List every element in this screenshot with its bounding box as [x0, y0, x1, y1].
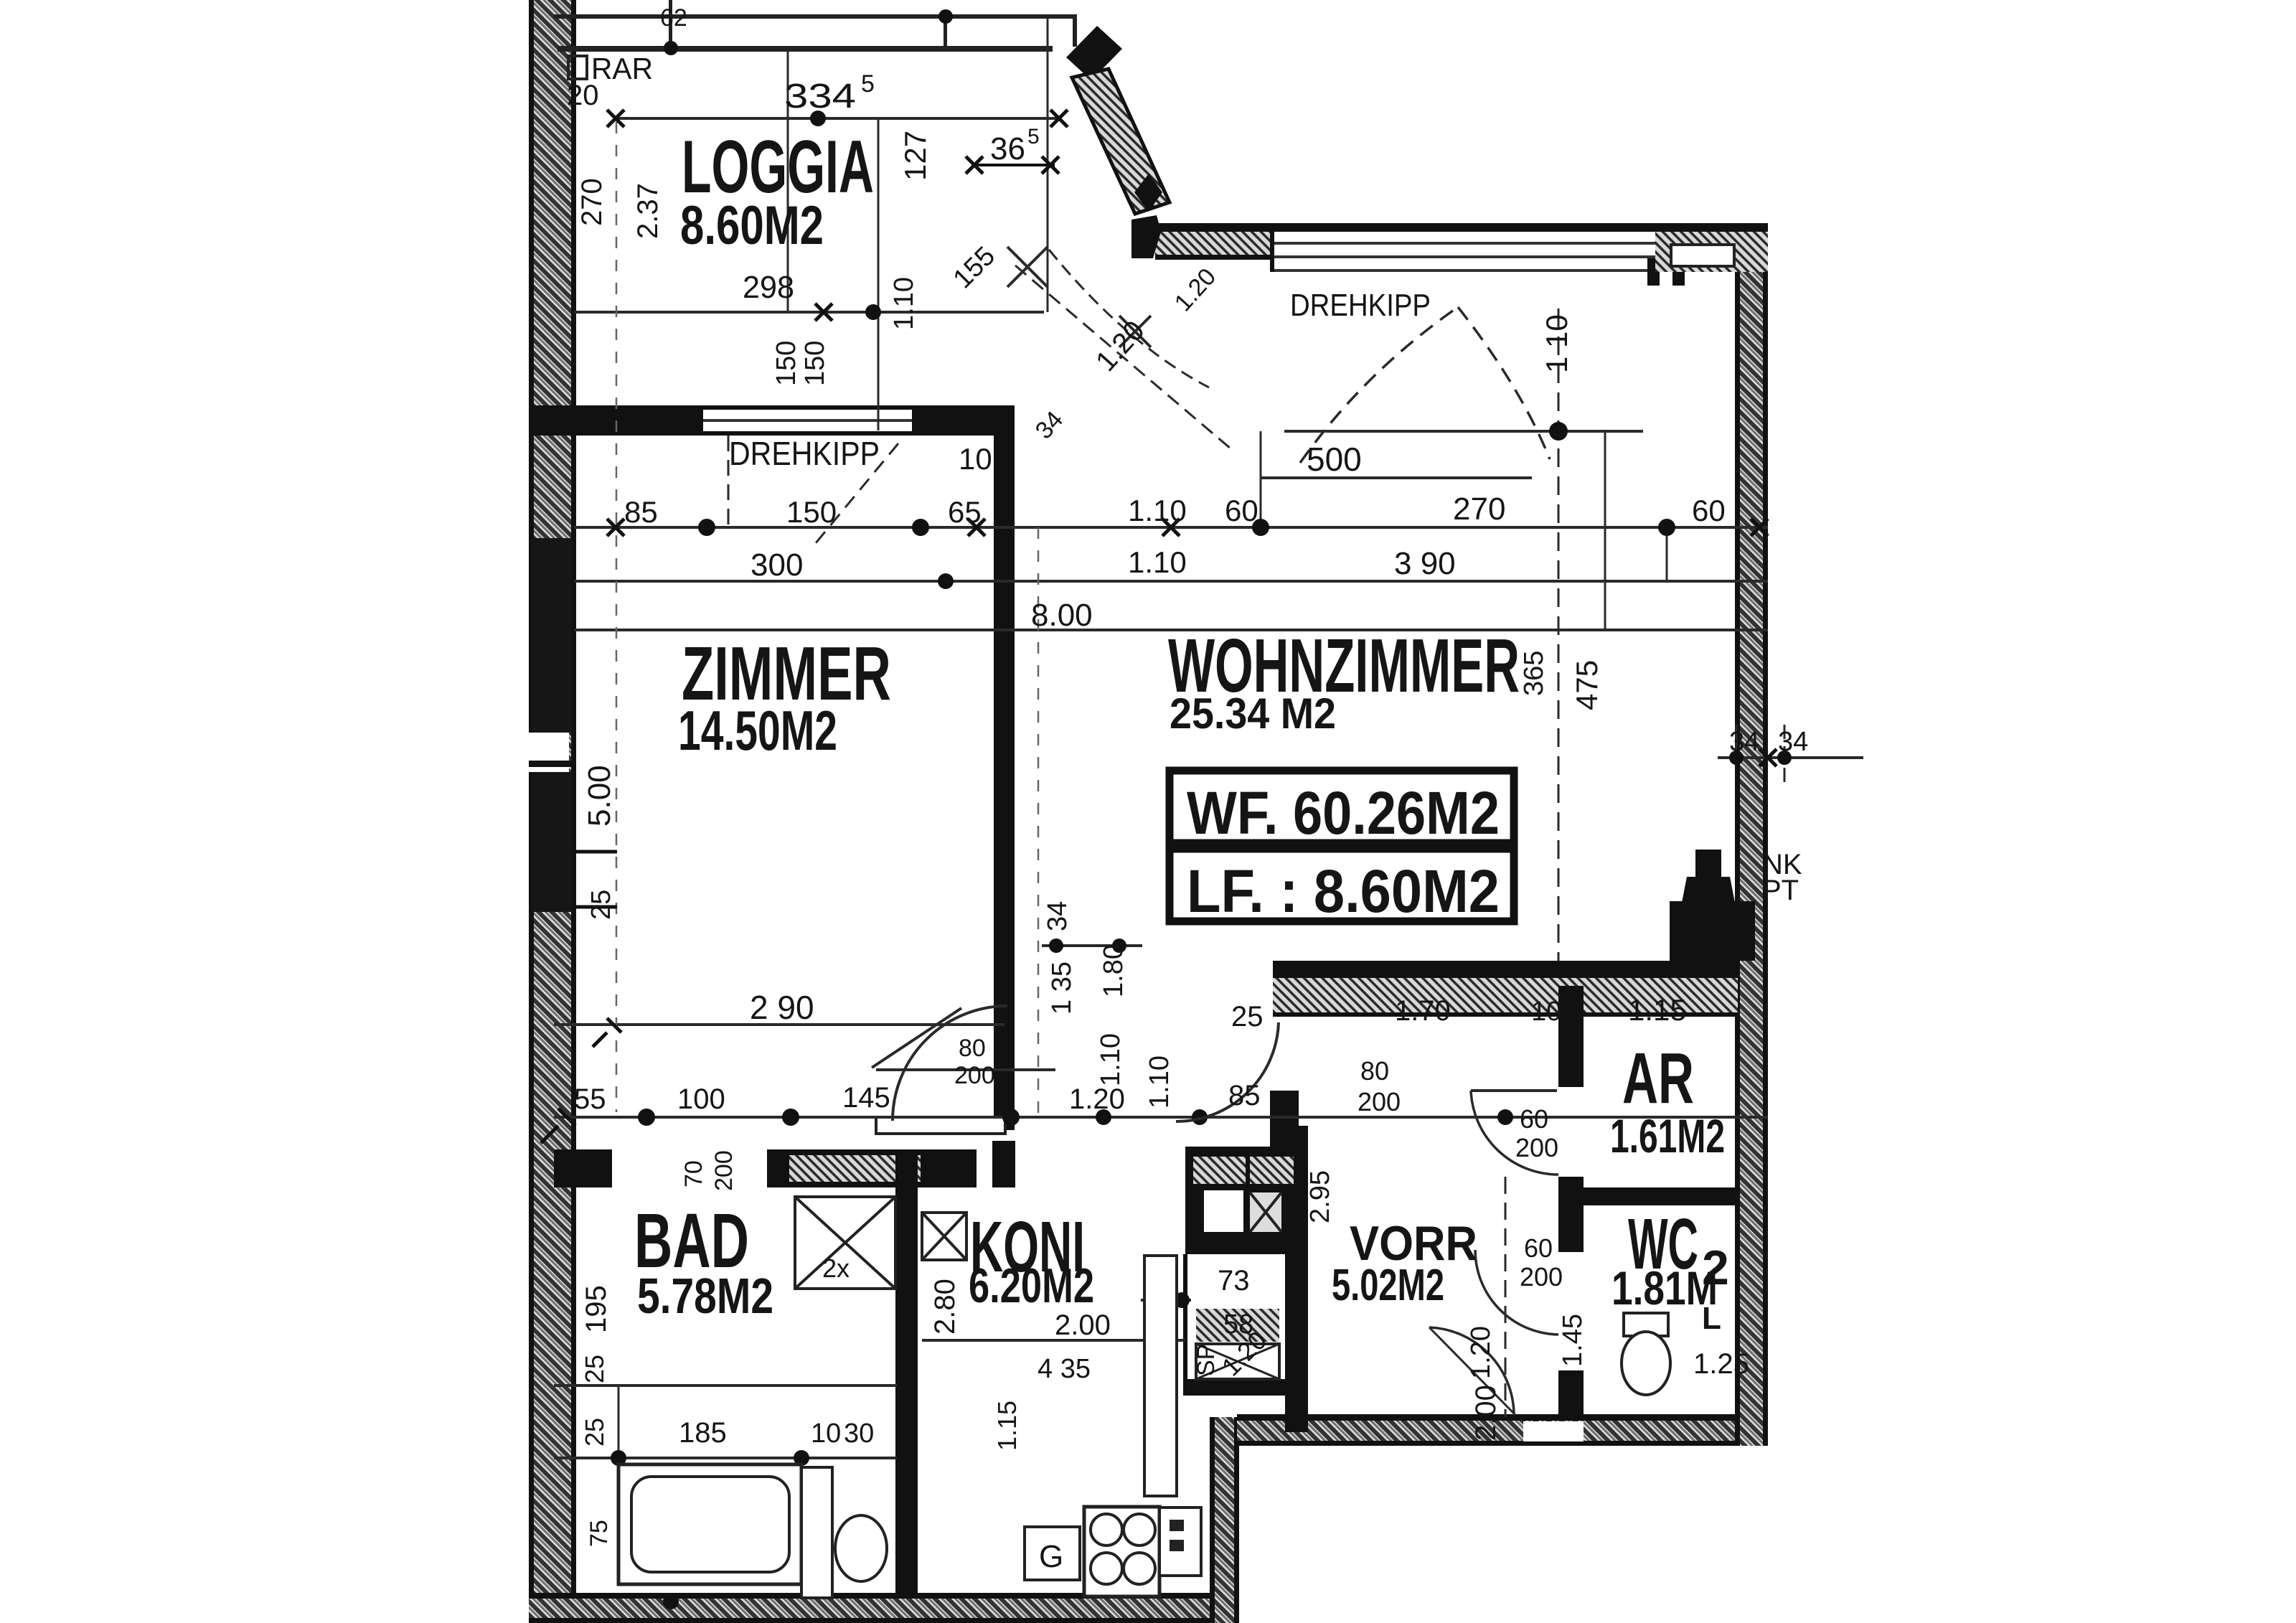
svg-text:1.61M2: 1.61M2 [1610, 1109, 1725, 1162]
svg-text:300: 300 [751, 547, 803, 583]
svg-text:DREHKIPP: DREHKIPP [1290, 288, 1431, 323]
svg-text:25: 25 [580, 1355, 609, 1383]
svg-text:4 35: 4 35 [1038, 1354, 1091, 1384]
svg-text:AR: AR [1622, 1038, 1694, 1119]
svg-text:2.00: 2.00 [1470, 1385, 1502, 1441]
svg-text:1.15: 1.15 [1628, 993, 1687, 1027]
svg-text:1.10: 1.10 [1144, 1055, 1175, 1109]
svg-text:10: 10 [811, 1419, 841, 1449]
svg-text:PT: PT [1762, 875, 1799, 906]
svg-text:2 90: 2 90 [750, 989, 814, 1026]
svg-text:1.20: 1.20 [1069, 1083, 1125, 1115]
svg-text:L: L [1702, 1301, 1721, 1336]
svg-text:3 90: 3 90 [1394, 546, 1456, 581]
svg-text:85: 85 [624, 495, 658, 529]
svg-text:G: G [1039, 1539, 1063, 1574]
svg-text:200: 200 [954, 1062, 995, 1089]
svg-text:1.45: 1.45 [1558, 1314, 1588, 1367]
svg-text:5.00: 5.00 [582, 765, 617, 827]
svg-text:DREHKIPP: DREHKIPP [729, 435, 880, 472]
svg-text:73: 73 [1218, 1265, 1250, 1297]
svg-text:36: 36 [990, 131, 1025, 166]
svg-text:1.70: 1.70 [1395, 995, 1451, 1027]
svg-text:80: 80 [1360, 1056, 1389, 1086]
svg-text:65: 65 [948, 495, 982, 529]
svg-text:8.60M2: 8.60M2 [680, 195, 824, 256]
svg-text:1.15: 1.15 [992, 1401, 1022, 1451]
svg-text:200: 200 [710, 1150, 738, 1191]
svg-text:60: 60 [1692, 494, 1726, 527]
svg-text:1.10: 1.10 [1128, 494, 1187, 527]
svg-text:5.78M2: 5.78M2 [637, 1268, 773, 1324]
svg-text:WF. 60.26M2: WF. 60.26M2 [1187, 779, 1500, 847]
svg-text:14.50M2: 14.50M2 [678, 699, 837, 762]
svg-text:10: 10 [959, 442, 992, 476]
svg-text:1 35: 1 35 [1047, 961, 1077, 1015]
svg-text:127: 127 [898, 131, 932, 181]
svg-text:185: 185 [679, 1417, 727, 1449]
svg-text:34: 34 [1043, 901, 1073, 931]
svg-text:85: 85 [1228, 1080, 1261, 1111]
svg-text:30: 30 [844, 1419, 874, 1449]
svg-text:55: 55 [574, 1083, 606, 1115]
svg-text:25: 25 [580, 1418, 609, 1446]
svg-text:25.34 M2: 25.34 M2 [1170, 690, 1336, 738]
svg-text:150: 150 [786, 495, 837, 529]
svg-text:1 10: 1 10 [1540, 314, 1573, 373]
svg-text:20: 20 [567, 80, 599, 111]
svg-text:RAR: RAR [591, 52, 653, 85]
svg-text:150: 150 [771, 341, 801, 386]
svg-text:200: 200 [1520, 1262, 1563, 1292]
svg-text:2.37: 2.37 [632, 183, 664, 239]
svg-text:2.00: 2.00 [1055, 1309, 1111, 1341]
svg-text:1.10: 1.10 [889, 277, 919, 330]
svg-text:1.20: 1.20 [1466, 1326, 1496, 1379]
svg-text:80: 80 [959, 1035, 986, 1062]
svg-text:298: 298 [743, 270, 794, 305]
svg-text:334: 334 [784, 77, 856, 116]
svg-text:LF. : 8.60M2: LF. : 8.60M2 [1187, 857, 1500, 925]
svg-text:2.95: 2.95 [1305, 1170, 1335, 1223]
svg-text:62: 62 [660, 4, 687, 32]
svg-text:150: 150 [800, 341, 830, 386]
svg-text:200: 200 [1515, 1133, 1558, 1162]
svg-text:75: 75 [585, 1520, 613, 1547]
svg-text:200: 200 [1358, 1087, 1401, 1116]
svg-text:70: 70 [680, 1160, 707, 1187]
svg-text:34: 34 [1729, 727, 1759, 757]
svg-text:25: 25 [586, 890, 616, 920]
svg-text:475: 475 [1570, 660, 1604, 710]
svg-text:6.20M2: 6.20M2 [969, 1259, 1094, 1313]
svg-text:10: 10 [1531, 997, 1561, 1027]
svg-text:270: 270 [576, 178, 608, 226]
svg-text:500: 500 [1307, 441, 1362, 478]
svg-text:2.80: 2.80 [929, 1279, 961, 1335]
svg-text:2x: 2x [822, 1253, 850, 1283]
svg-text:195: 195 [580, 1285, 612, 1333]
svg-text:5.02M2: 5.02M2 [1332, 1261, 1444, 1310]
svg-text:8.00: 8.00 [1031, 598, 1093, 633]
svg-text:365: 365 [1519, 651, 1549, 696]
svg-text:SP: SP [1192, 1344, 1220, 1376]
svg-text:60: 60 [1225, 494, 1258, 527]
svg-text:5: 5 [861, 70, 875, 98]
svg-text:1.25: 1.25 [1693, 1348, 1749, 1380]
svg-text:60: 60 [1520, 1104, 1548, 1134]
svg-text:145: 145 [842, 1082, 890, 1114]
svg-text:60: 60 [1524, 1233, 1553, 1263]
svg-text:270: 270 [1453, 491, 1505, 527]
svg-text:100: 100 [677, 1083, 725, 1115]
svg-text:34: 34 [1778, 727, 1808, 757]
svg-text:25: 25 [1231, 1001, 1264, 1032]
svg-text:1.80: 1.80 [1098, 944, 1129, 997]
svg-text:5: 5 [1027, 125, 1040, 149]
svg-text:1.10: 1.10 [1128, 545, 1187, 579]
svg-text:1.10: 1.10 [1096, 1033, 1126, 1086]
